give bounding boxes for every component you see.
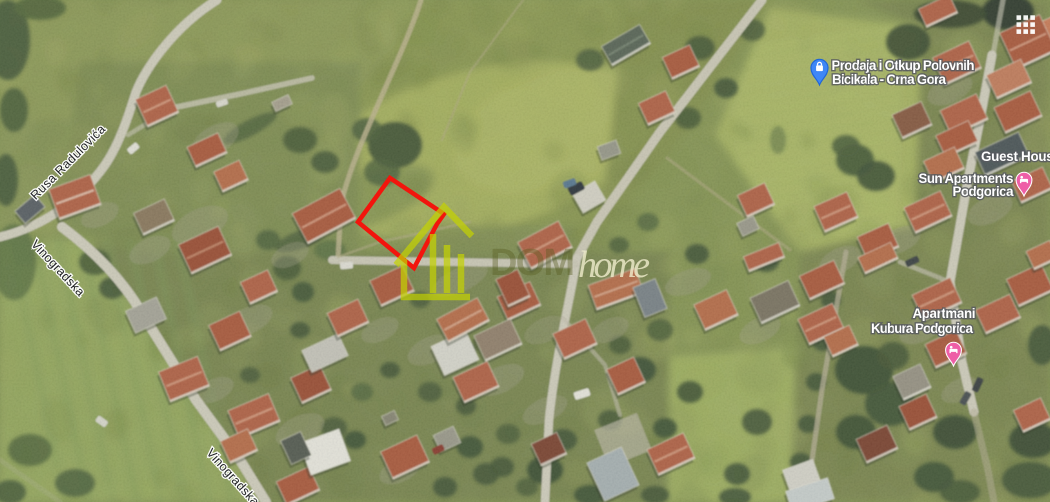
- svg-text:Kubura Podgorica: Kubura Podgorica: [871, 321, 973, 336]
- svg-text:Podgorica: Podgorica: [953, 184, 1014, 199]
- svg-text:Bicikala - Crna Gora: Bicikala - Crna Gora: [832, 72, 946, 87]
- svg-text:home: home: [578, 244, 650, 286]
- svg-text:DOM: DOM: [490, 242, 575, 284]
- svg-text:Prodaja i Otkup Polovnih: Prodaja i Otkup Polovnih: [832, 58, 975, 73]
- svg-text:Apartmani: Apartmani: [913, 306, 976, 321]
- svg-text:Guest House: Guest House: [981, 149, 1050, 164]
